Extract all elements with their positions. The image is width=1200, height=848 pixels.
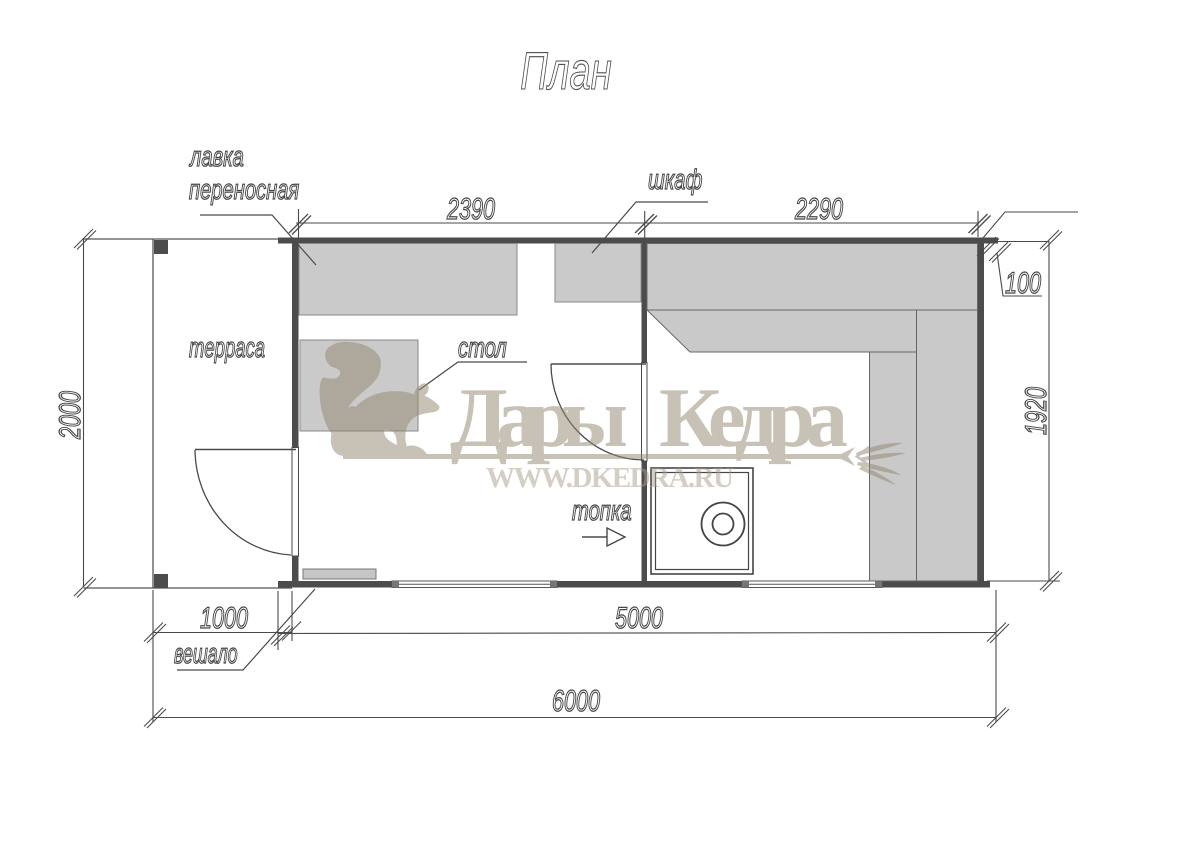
svg-text:вешало: вешало [174,638,238,669]
svg-text:2290: 2290 [794,193,843,226]
svg-text:топка: топка [572,495,632,526]
svg-text:1000: 1000 [200,602,248,635]
svg-text:100: 100 [1005,267,1041,300]
svg-text:шкаф: шкаф [648,164,702,195]
svg-text:Кедра: Кедра [659,371,848,465]
svg-text:WWW.DKEDRA.RU: WWW.DKEDRA.RU [486,462,734,494]
svg-text:6000: 6000 [552,685,600,718]
svg-text:1920: 1920 [1020,387,1053,435]
svg-text:План: План [520,42,611,101]
svg-text:5000: 5000 [615,602,663,635]
svg-text:терраса: терраса [189,332,265,363]
svg-text:переносная: переносная [189,174,299,205]
svg-text:стол: стол [458,332,507,363]
svg-text:2000: 2000 [54,391,87,440]
svg-text:лавка: лавка [189,141,244,172]
svg-text:2390: 2390 [446,193,495,226]
svg-text:Дары: Дары [450,371,628,465]
